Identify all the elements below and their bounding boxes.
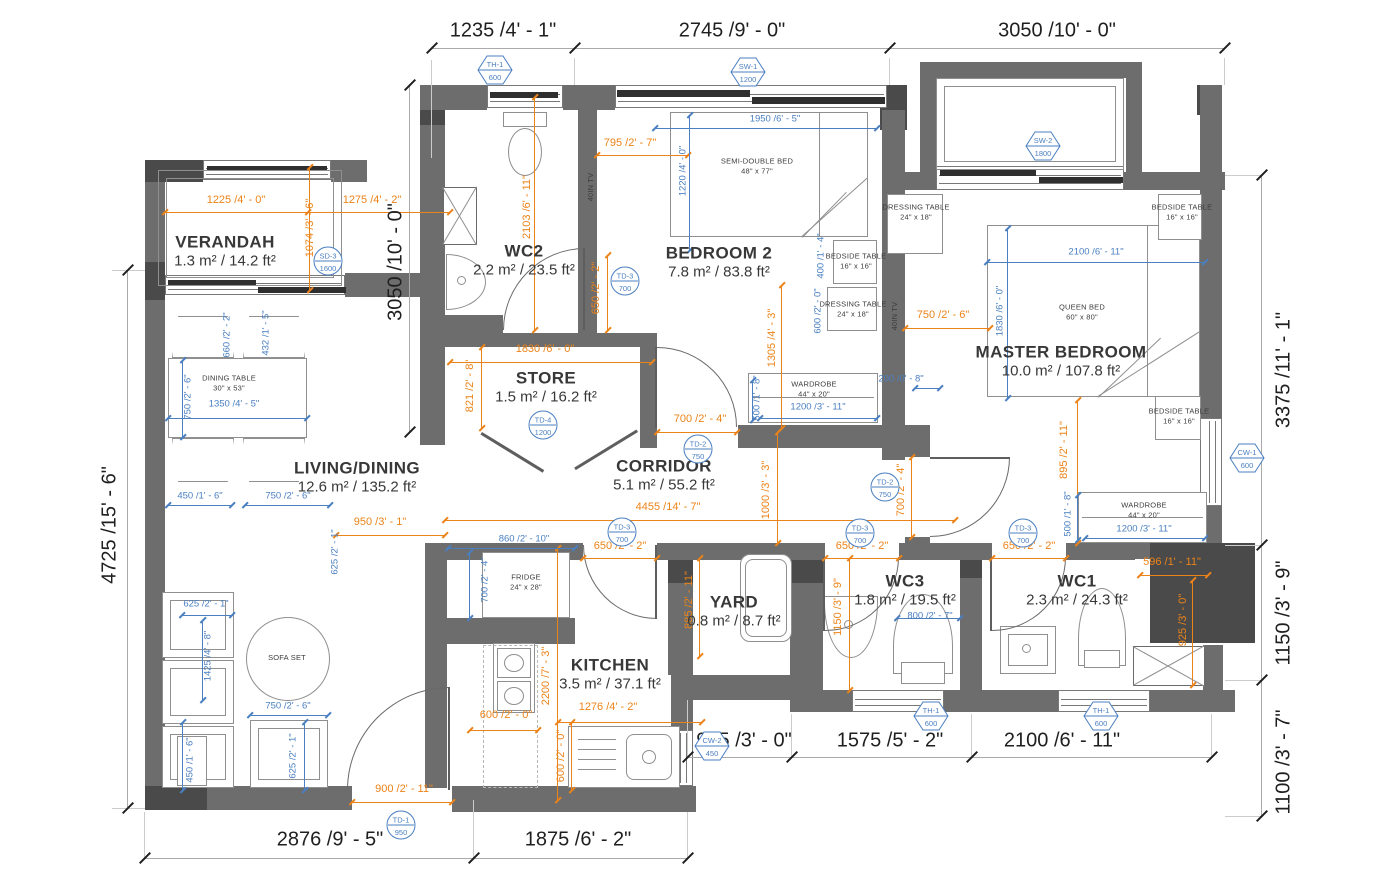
svg-text:TD-3: TD-3 [614, 523, 631, 532]
door-tag-td-1: TD-1950 [386, 810, 416, 840]
dim-line [781, 285, 782, 428]
room-name: STORE [495, 369, 597, 389]
svg-text:700: 700 [854, 536, 867, 545]
extension-line [1224, 58, 1225, 85]
door-tag-td-3: TD-3700 [1008, 518, 1038, 548]
room-label-master-bedroom: MASTER BEDROOM10.0 m² / 107.8 ft² [976, 343, 1147, 380]
room-name: WC1 [1026, 572, 1128, 592]
svg-text:450: 450 [706, 749, 719, 758]
room-label-wc3: WC31.8 m² / 19.5 ft² [854, 572, 956, 609]
wall-segment [905, 425, 930, 457]
drainboard-line [578, 749, 616, 750]
dimension-black: 3050 /10' - 0" [385, 203, 408, 321]
furniture-label: DRESSING TABLE24" x 18" [882, 202, 949, 222]
door-leaf [930, 457, 1010, 459]
svg-text:600: 600 [925, 719, 938, 728]
dimension-black: 1575 /5' - 2" [837, 730, 944, 753]
furniture-label-line: WARDROBE [1121, 500, 1167, 510]
dim-line [760, 418, 877, 419]
wall-segment [445, 618, 575, 644]
dimension-blue: 700 /2' - 4" [480, 557, 491, 602]
dimension-blue: 450 /1' - 6" [177, 491, 222, 502]
svg-text:600: 600 [489, 73, 502, 82]
room-area: 5.1 m² / 55.2 ft² [613, 477, 715, 494]
window-panel [940, 170, 1036, 176]
wall-segment [1200, 85, 1222, 418]
svg-text:600: 600 [1241, 461, 1254, 470]
svg-text:SW-1: SW-1 [739, 62, 758, 71]
furniture-label-line: 48" x 77" [721, 166, 793, 176]
dimension-blue: 1425 /4' - 8" [203, 631, 214, 682]
door-arc [347, 687, 450, 790]
dim-line [1085, 538, 1205, 539]
room-label-kitchen: KITCHEN3.5 m² / 37.1 ft² [559, 656, 661, 693]
dimension-orange: 1225 /4' - 0" [207, 194, 266, 206]
furniture-label-line: FRIDGE [510, 572, 542, 582]
furniture-label: BEDSIDE TABLE16" x 16" [826, 251, 887, 271]
extension-line [687, 812, 688, 858]
dim-line [689, 115, 690, 250]
dim-line [182, 615, 232, 616]
svg-text:TH-1: TH-1 [923, 706, 940, 715]
wall-segment [920, 62, 936, 174]
dim-tick [327, 502, 334, 509]
chair [172, 438, 234, 482]
svg-text:TD-3: TD-3 [617, 272, 634, 281]
furniture-label: SOFA SET [268, 653, 306, 663]
dim-line [448, 548, 575, 549]
svg-text:1200: 1200 [740, 75, 757, 84]
dim-line [583, 558, 657, 559]
svg-text:TD-2: TD-2 [690, 440, 707, 449]
door-leaf [823, 557, 825, 631]
extension-line [889, 58, 890, 85]
dim-line [558, 722, 702, 723]
door-tag-sd-3: SD-31600 [313, 246, 343, 276]
dimension-orange: 900 /2' - 11" [375, 783, 433, 795]
room-area: 0.8 m² / 8.7 ft² [687, 613, 780, 630]
room-area: 1.5 m² / 16.2 ft² [495, 389, 597, 406]
toilet-base [901, 662, 945, 684]
svg-text:TD-4: TD-4 [535, 416, 552, 425]
svg-text:TH-1: TH-1 [1093, 706, 1110, 715]
dim-line [905, 328, 990, 329]
basin-drain [1022, 644, 1031, 653]
window-tag-th-1: TH-1600 [477, 55, 513, 85]
drainboard-line [578, 769, 616, 770]
door-leaf [990, 557, 992, 631]
dimension-blue: 1200 /3' - 11" [790, 402, 845, 413]
drain [642, 750, 656, 764]
dim-line [168, 505, 232, 506]
furniture-label-line: 24" x 18" [819, 309, 886, 319]
dimension-black: 2100 /6' - 11" [1004, 730, 1120, 753]
room-name: MASTER BEDROOM [976, 343, 1147, 363]
room-area: 1.8 m² / 19.5 ft² [854, 592, 956, 609]
dimension-orange: 4455 /14' - 7" [636, 501, 701, 513]
furniture-label-line: 24" x 28" [510, 582, 542, 592]
dimension-blue: 1220 /4' - 0" [678, 146, 689, 197]
chair [243, 316, 305, 358]
dim-line [1140, 575, 1208, 576]
dimension-blue: 1200 /3' - 11" [1116, 524, 1171, 535]
furniture-label-line: 40IN TV [586, 173, 596, 202]
dimension-orange: 1276 /4' - 2" [579, 701, 638, 713]
door-tag-td-3: TD-3700 [845, 518, 875, 548]
svg-text:750: 750 [879, 490, 892, 499]
wall-segment [585, 315, 597, 333]
extension-line [431, 60, 432, 158]
furniture-label-line: 16" x 16" [1152, 212, 1213, 222]
svg-text:950: 950 [395, 828, 408, 837]
room-name: WC2 [473, 242, 575, 262]
dim-line [825, 558, 899, 559]
dimension-black: 1100 /3' - 7" [1273, 709, 1296, 814]
furniture-label-line: 16" x 16" [826, 261, 887, 271]
furniture-label: WARDROBE44" x 20" [1121, 500, 1167, 520]
door-tag-td-2: TD-2750 [870, 472, 900, 502]
wall-segment [1203, 645, 1223, 690]
dim-tick [937, 385, 944, 392]
extension-line [1225, 680, 1262, 681]
window-tag-sw-2: SW-21800 [1025, 131, 1061, 161]
room-label-verandah: VERANDAH1.3 m² / 14.2 ft² [174, 233, 276, 270]
dim-line [445, 520, 955, 521]
shelf [170, 668, 226, 716]
dim-line [250, 715, 328, 716]
furniture-label: WARDROBE44" x 20" [791, 379, 837, 399]
dim-line [182, 722, 183, 790]
dimension-blue: 450 /1' - 6" [185, 737, 196, 782]
dim-line [304, 722, 305, 790]
room-label-wc1: WC12.3 m² / 24.3 ft² [1026, 572, 1128, 609]
toilet-bowl [508, 128, 542, 176]
dim-tick [404, 426, 416, 438]
svg-text:TD-3: TD-3 [1015, 524, 1032, 533]
dim-line [1077, 495, 1078, 540]
furniture-label: SEMI-DOUBLE BED48" x 77" [721, 156, 793, 176]
wall-segment [1126, 62, 1142, 174]
dimension-black: 1875 /6' - 2" [525, 829, 632, 852]
dimension-blue: 800 /2' - 7" [907, 611, 952, 622]
extension-line [1211, 714, 1212, 757]
window-tag-cw-2: CW-2450 [694, 731, 730, 761]
room-area: 7.8 m² / 83.8 ft² [666, 264, 773, 281]
room-label-wc2: WC22.2 m² / 23.5 ft² [473, 242, 575, 279]
dimension-black: 2876 /9' - 5" [277, 829, 384, 852]
drainboard-line [578, 739, 616, 740]
room-name: KITCHEN [559, 656, 661, 676]
wall-segment [738, 425, 907, 448]
basin-drain [457, 276, 466, 285]
dimension-blue: 200 /0' - 8" [878, 374, 923, 385]
window-panel [258, 287, 346, 293]
furniture-label-line: 60" x 80" [1059, 312, 1105, 322]
wall-segment [944, 690, 1058, 712]
dimension-orange: 821 /2' - 8" [464, 360, 476, 412]
dimension-black: 1150 /3' - 9" [1273, 560, 1296, 665]
dim-tick [1075, 397, 1082, 404]
dim-line [992, 558, 1066, 559]
door-arc [930, 457, 1010, 537]
door-tag-td-3: TD-3700 [610, 266, 640, 296]
dim-line [352, 802, 452, 803]
wall-segment [145, 786, 207, 810]
extension-line [1225, 545, 1262, 546]
door-tag-td-3: TD-3700 [607, 517, 637, 547]
furniture-label-line: SOFA SET [268, 653, 306, 663]
door-leaf [448, 687, 450, 790]
room-label-bedroom-2: BEDROOM 27.8 m² / 83.8 ft² [666, 244, 773, 281]
dimension-blue: 625 /2' - 1" [183, 599, 228, 610]
dimension-orange: 750 /2' - 6" [917, 309, 969, 321]
furniture-label-line: DRESSING TABLE [882, 202, 949, 212]
furniture-label: DRESSING TABLE24" x 18" [819, 299, 886, 319]
svg-text:SD-3: SD-3 [319, 252, 336, 261]
room-label-living-dining: LIVING/DINING12.6 m² / 135.2 ft² [294, 459, 420, 496]
room-area: 1.3 m² / 14.2 ft² [174, 253, 276, 270]
dim-tick [697, 653, 704, 660]
wall-segment [920, 62, 1142, 78]
furniture-label: BEDSIDE TABLE16" x 16" [1149, 406, 1210, 426]
svg-text:700: 700 [616, 535, 629, 544]
dimension-blue: 432 /1' - 5" [261, 310, 272, 355]
room-area: 2.2 m² / 23.5 ft² [473, 262, 575, 279]
dim-line [481, 347, 482, 428]
furniture-label-line: SEMI-DOUBLE BED [721, 156, 793, 166]
furniture-label-line: DRESSING TABLE [819, 299, 886, 309]
extension-line [574, 58, 575, 85]
dimension-blue: 625 /2' - 1" [330, 529, 341, 574]
furniture-label: FRIDGE24" x 28" [510, 572, 542, 592]
dimension-blue: 2100 /6' - 11" [1068, 247, 1123, 258]
floor-plan: 1235 /4' - 1"2745 /9' - 0"3050 /10' - 0"… [0, 0, 1400, 880]
dim-tick [442, 532, 449, 539]
dim-line [849, 558, 850, 690]
dimension-orange: 596 /1' - 11" [1143, 556, 1201, 568]
room-name: YARD [687, 593, 780, 613]
furniture-label-line: BEDSIDE TABLE [1152, 202, 1213, 212]
svg-text:1200: 1200 [535, 428, 552, 437]
drainboard-line [578, 759, 616, 760]
room-label-store: STORE1.5 m² / 16.2 ft² [495, 369, 597, 406]
dimension-blue: 1830 /6' - 0" [995, 286, 1006, 337]
svg-text:TD-1: TD-1 [393, 816, 410, 825]
window-panel [752, 97, 885, 104]
svg-text:1600: 1600 [320, 264, 337, 273]
dim-line [1261, 175, 1262, 816]
dim-tick [325, 712, 332, 719]
furniture-label-line: DINING TABLE [202, 373, 256, 383]
dim-line [1192, 580, 1193, 685]
dim-tick [479, 425, 486, 432]
furniture-label: DINING TABLE30" x 53" [202, 373, 256, 393]
dimension-blue: 1950 /6' - 5" [750, 114, 801, 125]
door-tag-td-4: TD-41200 [528, 410, 558, 440]
dimension-orange: 895 /2' - 11" [1058, 421, 1070, 479]
room-name: LIVING/DINING [294, 459, 420, 479]
dimension-blue: 500 /1' - 8" [752, 375, 763, 420]
dim-line [432, 48, 1225, 49]
dimension-orange: 2103 /6' - 11" [521, 175, 533, 239]
room-name: VERANDAH [174, 233, 276, 253]
furniture-label: 40IN TV [890, 302, 900, 331]
dimension-blue: 860 /2' - 10" [499, 534, 550, 545]
furniture-label: BEDSIDE TABLE16" x 16" [1152, 202, 1213, 222]
furniture-label-line: 16" x 16" [1149, 416, 1210, 426]
dimension-orange: 1275 /4' - 2" [343, 194, 402, 206]
window-panel [490, 92, 558, 98]
room-name: BEDROOM 2 [666, 244, 773, 264]
dimension-blue: 500 /1' - 8" [1063, 491, 1074, 536]
door-leaf [583, 248, 585, 330]
dimension-blue: 1350 /4' - 5" [209, 399, 260, 410]
dimension-orange: 950 /3' - 1" [354, 516, 406, 528]
dim-line [987, 262, 1205, 263]
dimension-orange: 650 /2' - 2" [590, 262, 602, 314]
room-label-yard: YARD0.8 m² / 8.7 ft² [687, 593, 780, 630]
dim-line [469, 552, 470, 618]
furniture-label-line: 30" x 53" [202, 383, 256, 393]
dimension-orange: 925 /3' - 0" [1177, 594, 1189, 646]
window-tag-th-1: TH-1600 [1083, 701, 1119, 731]
toilet-base [1084, 650, 1120, 668]
dimension-black: 3050 /10' - 0" [998, 20, 1116, 43]
dim-line [245, 505, 330, 506]
svg-text:700: 700 [619, 284, 632, 293]
furniture-label-line: 24" x 18" [882, 212, 949, 222]
room-area: 3.5 m² / 37.1 ft² [559, 676, 661, 693]
wall-segment [882, 172, 937, 190]
wall-segment [420, 315, 503, 333]
svg-text:1800: 1800 [1035, 149, 1052, 158]
wall-segment [452, 786, 696, 812]
dimension-orange: 2200 /7' - 3" [540, 647, 552, 706]
svg-text:700: 700 [1017, 536, 1030, 545]
dimension-blue: 660 /2' - 2" [222, 312, 233, 357]
dimension-orange: 700 /2' - 4" [674, 413, 726, 425]
extension-line [144, 812, 145, 858]
toilet-tank [503, 112, 547, 127]
furniture-label-line: 40IN TV [890, 302, 900, 331]
dim-line [688, 757, 1212, 758]
window-tag-cw-1: CW-1600 [1229, 443, 1265, 473]
dim-line [597, 155, 688, 156]
svg-text:TH-1: TH-1 [487, 60, 504, 69]
dim-tick [404, 79, 416, 91]
svg-text:SW-2: SW-2 [1034, 136, 1053, 145]
extension-line [1225, 175, 1262, 176]
window-tag-sw-1: SW-11200 [730, 57, 766, 87]
dim-line [145, 858, 688, 859]
dimension-black: 4725 /15' - 6" [99, 466, 122, 584]
svg-text:CW-1: CW-1 [1237, 448, 1256, 457]
furniture-label-line: 44" x 20" [1121, 510, 1167, 520]
dimension-black: 3375 /11' - 1" [1273, 312, 1296, 428]
furniture-label-line: BEDSIDE TABLE [1149, 406, 1210, 416]
dim-tick [605, 252, 612, 259]
extension-line [971, 714, 972, 757]
dimension-black: 2745 /9' - 0" [679, 20, 786, 43]
svg-text:750: 750 [692, 452, 705, 461]
dim-tick [779, 282, 786, 289]
wall-segment [420, 347, 445, 445]
dimension-orange: 600 /2' - 0" [555, 730, 567, 782]
room-area: 12.6 m² / 135.2 ft² [294, 479, 420, 496]
dim-line [336, 535, 445, 536]
furniture-label-line: QUEEN BED [1059, 302, 1105, 312]
pillow-line [1147, 225, 1148, 397]
furniture-label-line: 44" x 20" [791, 389, 837, 399]
dimension-blue: 750 /2' - 6" [265, 701, 310, 712]
dim-line [657, 432, 737, 433]
window-panel [617, 90, 750, 97]
wall-segment [563, 85, 615, 110]
dimension-orange: 1830 /6' - 0" [516, 343, 575, 355]
dimension-orange: 795 /2' - 7" [604, 137, 656, 149]
room-area: 10.0 m² / 107.8 ft² [976, 363, 1147, 380]
dimension-blue: 750 /2' - 6" [183, 374, 194, 419]
dim-line [571, 722, 572, 790]
extension-line [1225, 816, 1262, 817]
svg-text:600: 600 [1095, 719, 1108, 728]
wall-segment [882, 110, 905, 460]
dim-line [607, 255, 608, 330]
dimension-blue: 625 /2' - 1" [288, 733, 299, 778]
door-arc [583, 545, 657, 619]
dim-line [777, 432, 778, 543]
wall-segment [1150, 690, 1235, 712]
dim-line [911, 457, 912, 537]
dim-tick [699, 719, 706, 726]
dimension-orange: 600 /2' - 0" [480, 709, 532, 721]
dim-line [470, 730, 538, 731]
dimension-black: 1235 /4' - 1" [450, 20, 557, 43]
room-name: WC3 [854, 572, 956, 592]
door-tag-td-2: TD-2750 [683, 434, 713, 464]
dim-line [127, 270, 128, 808]
extension-line [687, 700, 688, 757]
window-tag-th-1: TH-1600 [913, 701, 949, 731]
extension-line [473, 800, 474, 858]
dim-line [534, 97, 535, 330]
wall-segment [671, 675, 803, 700]
dimension-orange: 1305 /4' - 3" [766, 309, 778, 368]
svg-text:TD-3: TD-3 [852, 524, 869, 533]
wall-segment [790, 690, 852, 712]
window-panel [1039, 177, 1123, 183]
furniture-label-line: WARDROBE [791, 379, 837, 389]
furniture-label: QUEEN BED60" x 80" [1059, 302, 1105, 322]
dim-line [409, 85, 410, 432]
room-area: 2.3 m² / 24.3 ft² [1026, 592, 1128, 609]
dimension-orange: 1000 /3' - 3" [760, 461, 772, 520]
svg-text:TD-2: TD-2 [877, 478, 894, 487]
furniture-label-line: BEDSIDE TABLE [826, 251, 887, 261]
dim-tick [229, 502, 236, 509]
svg-text:CW-2: CW-2 [702, 736, 721, 745]
furniture-label: 40IN TV [586, 173, 596, 202]
dimension-orange: 1150 /3' - 9" [832, 578, 844, 636]
